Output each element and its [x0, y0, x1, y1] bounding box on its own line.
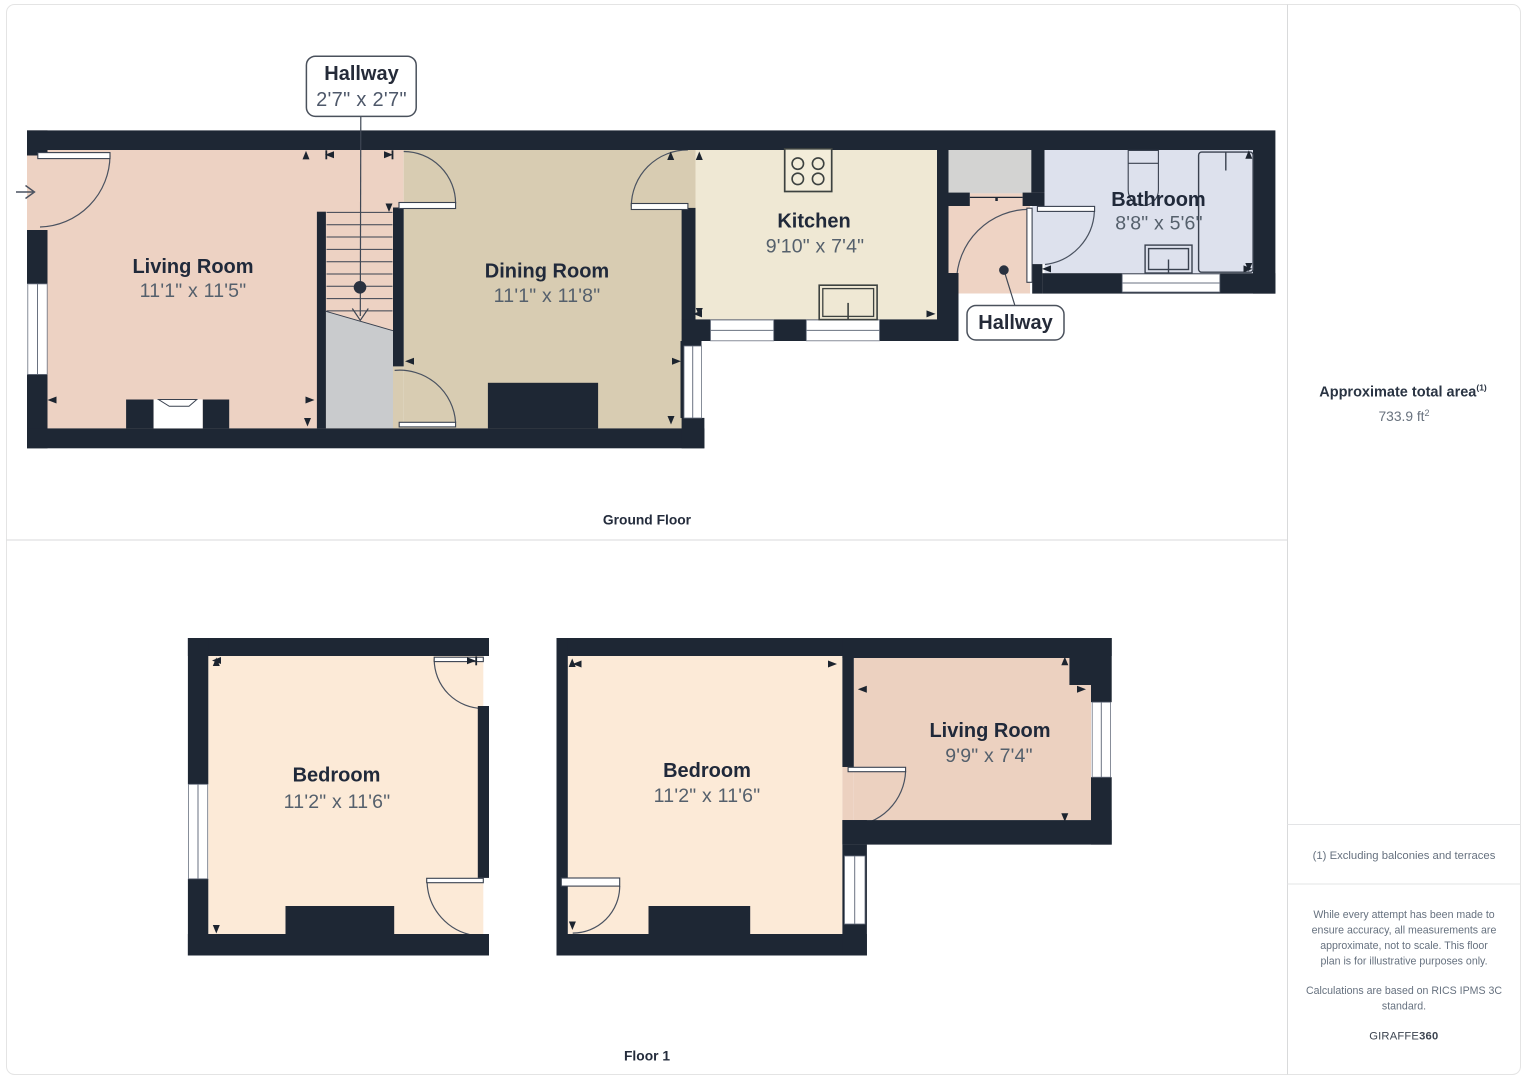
svg-text:Approximate total area(1): Approximate total area(1)	[1319, 383, 1487, 401]
svg-text:Living Room: Living Room	[132, 256, 253, 278]
svg-text:Bathroom: Bathroom	[1111, 189, 1205, 211]
svg-text:2'7" x 2'7": 2'7" x 2'7"	[316, 89, 407, 111]
svg-text:733.9 ft2: 733.9 ft2	[1378, 408, 1429, 424]
svg-text:Floor 1: Floor 1	[624, 1049, 670, 1064]
svg-text:standard.: standard.	[1382, 1001, 1426, 1013]
svg-text:11'1" x 11'8": 11'1" x 11'8"	[494, 285, 601, 307]
svg-text:Living Room: Living Room	[929, 720, 1050, 742]
svg-text:8'8" x 5'6": 8'8" x 5'6"	[1115, 213, 1202, 235]
svg-text:GIRAFFE360: GIRAFFE360	[1369, 1031, 1438, 1043]
svg-text:Hallway: Hallway	[324, 63, 399, 85]
svg-text:Bedroom: Bedroom	[293, 764, 381, 786]
svg-text:ensure accuracy, all measureme: ensure accuracy, all measurements are	[1312, 925, 1497, 937]
svg-text:While every attempt has been m: While every attempt has been made to	[1313, 909, 1494, 921]
svg-text:(1) Excluding balconies and te: (1) Excluding balconies and terraces	[1313, 850, 1496, 862]
svg-text:9'10" x 7'4": 9'10" x 7'4"	[766, 235, 865, 257]
svg-text:approximate, not to scale. Thi: approximate, not to scale. This floor	[1320, 940, 1488, 952]
svg-text:Hallway: Hallway	[978, 312, 1053, 334]
svg-text:Dining Room: Dining Room	[485, 261, 609, 283]
svg-text:Calculations are based on RICS: Calculations are based on RICS IPMS 3C	[1306, 985, 1502, 997]
svg-text:Ground Floor: Ground Floor	[603, 513, 692, 528]
svg-text:Kitchen: Kitchen	[777, 210, 850, 232]
svg-text:plan is for illustrative purpo: plan is for illustrative purposes only.	[1320, 956, 1487, 968]
svg-text:11'2" x 11'6": 11'2" x 11'6"	[284, 791, 391, 813]
svg-text:11'1" x 11'5": 11'1" x 11'5"	[140, 280, 247, 302]
svg-text:11'2" x 11'6": 11'2" x 11'6"	[654, 785, 761, 807]
svg-text:9'9" x 7'4": 9'9" x 7'4"	[945, 745, 1032, 767]
svg-text:Bedroom: Bedroom	[663, 760, 751, 782]
